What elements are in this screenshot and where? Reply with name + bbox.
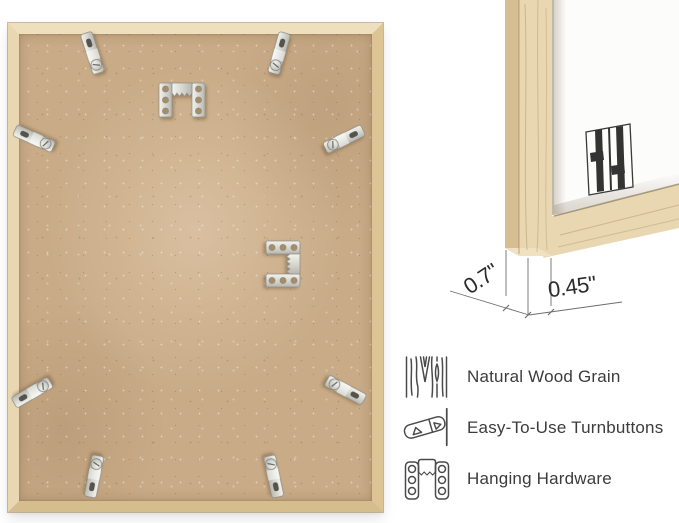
wood-grain-icon: [403, 354, 453, 400]
feature-row-turnbuttons: Easy-To-Use Turnbuttons: [403, 405, 679, 451]
product-image: 0.7" 0.45" Natural Wood Grain: [0, 0, 679, 523]
feature-row-hanging-hardware: Hanging Hardware: [403, 456, 679, 502]
feature-label: Natural Wood Grain: [467, 367, 621, 387]
turnbutton: [13, 125, 56, 153]
sawtooth-hanger-side: [266, 241, 300, 287]
depth-dimension-label: 0.7": [459, 258, 503, 299]
turnbutton-icon: [403, 405, 453, 451]
feature-label: Easy-To-Use Turnbuttons: [467, 418, 663, 438]
face-width-dimension-label: 0.45": [546, 271, 597, 302]
frame-back-photo: [8, 23, 383, 512]
turnbutton: [324, 375, 367, 405]
frame-corner-photo: 0.7" 0.45": [440, 0, 679, 335]
feature-label: Hanging Hardware: [467, 469, 612, 489]
turnbutton: [80, 31, 104, 75]
turnbutton: [323, 125, 366, 154]
turnbutton: [263, 455, 283, 499]
feature-row-wood-grain: Natural Wood Grain: [403, 354, 679, 400]
frame-back-hardware: [8, 23, 383, 512]
turnbutton: [11, 377, 53, 408]
hanging-hardware-icon: [403, 456, 453, 502]
frame-stile: [505, 0, 553, 256]
feature-list: Natural Wood Grain Easy-To-Use Turnbutto…: [403, 354, 679, 507]
sawtooth-hanger-top: [159, 83, 205, 117]
turnbutton: [84, 455, 104, 499]
turnbutton: [268, 31, 291, 75]
